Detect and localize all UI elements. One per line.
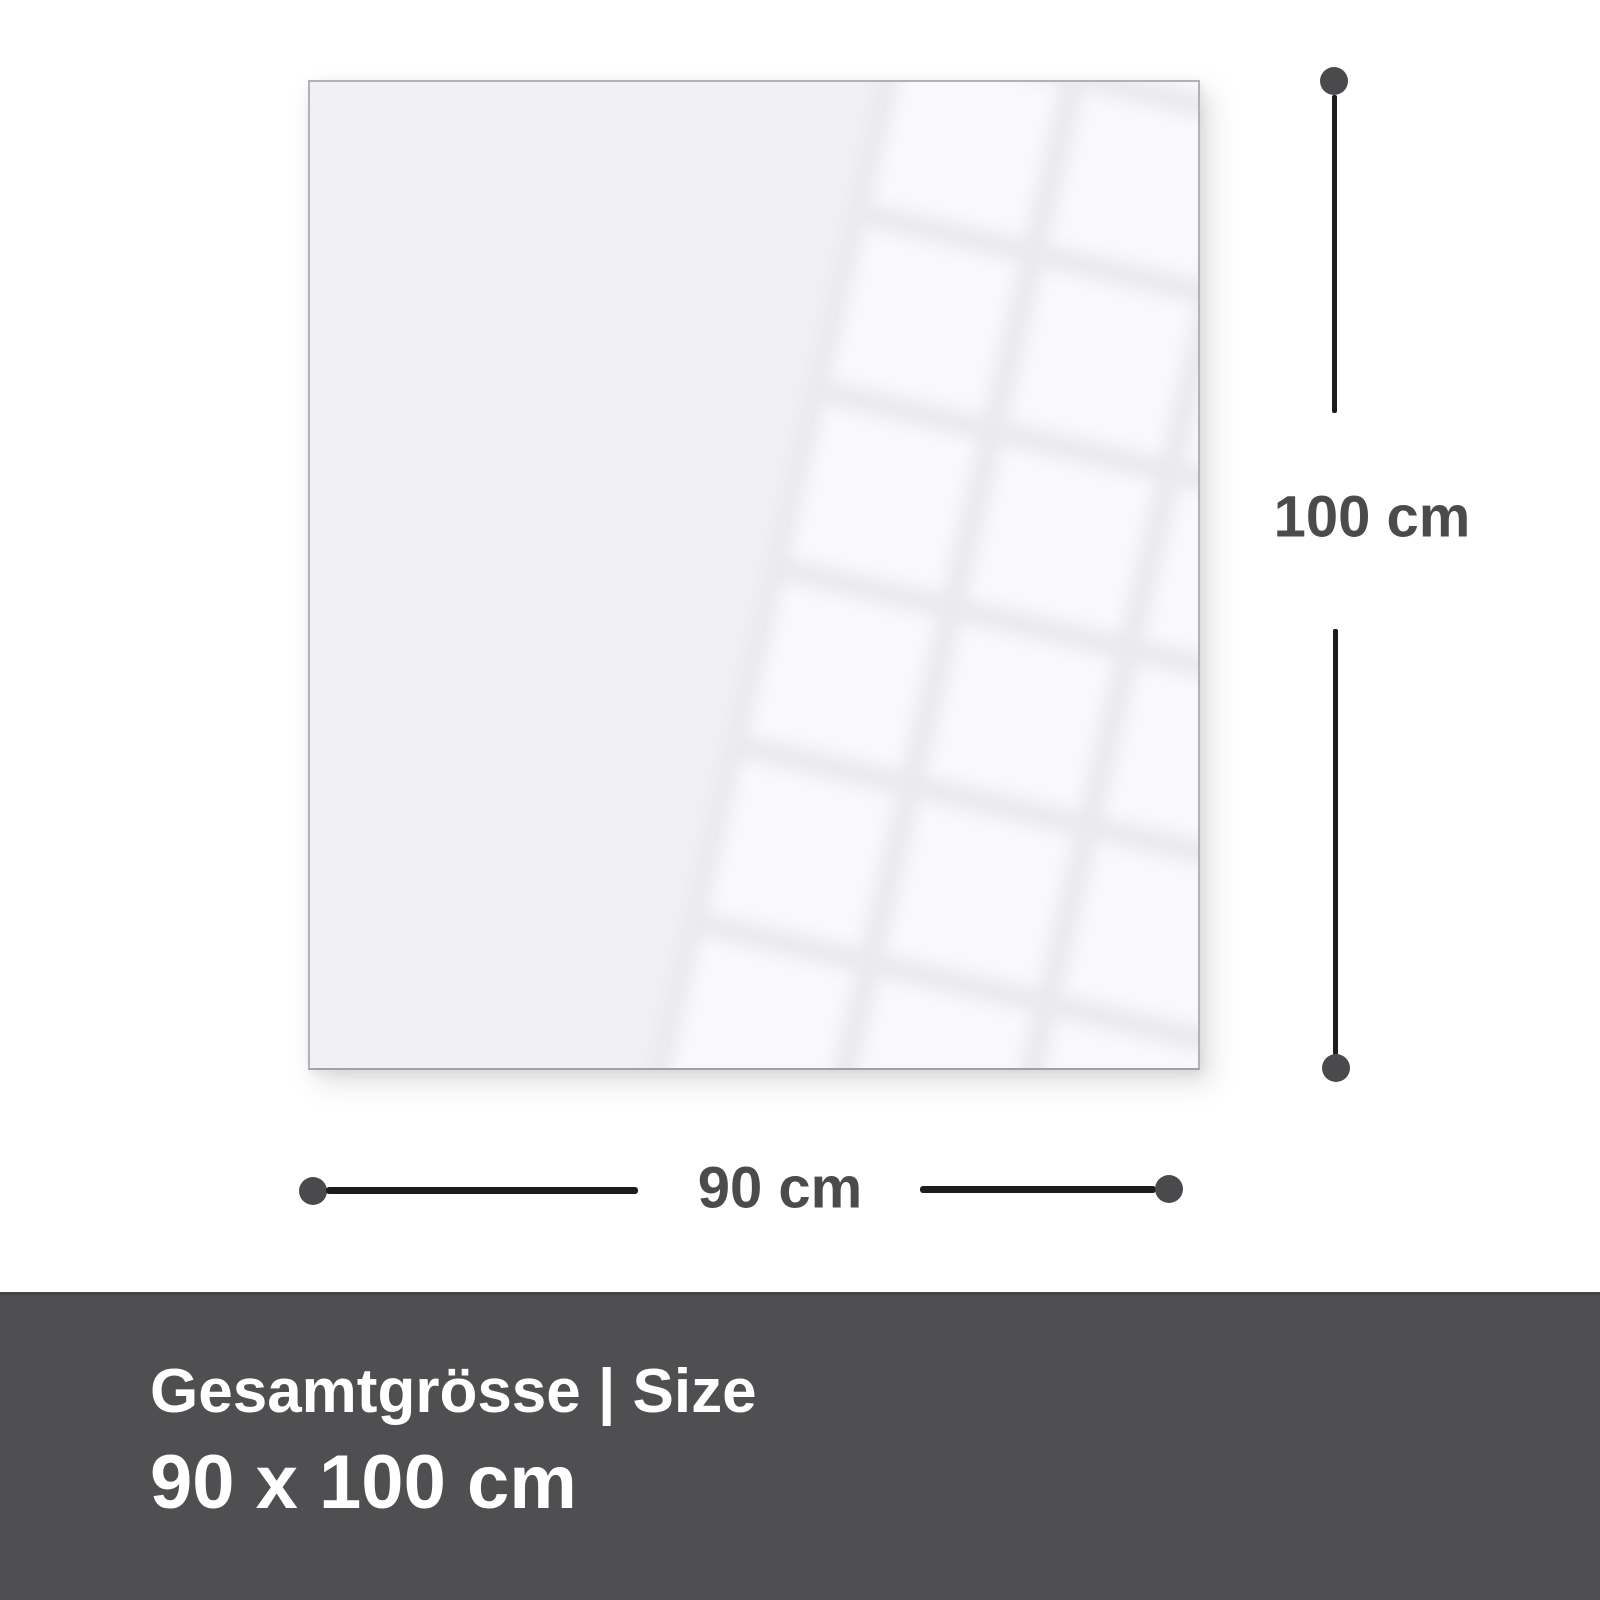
dimension-endpoint-dot-top [1320, 67, 1348, 95]
product-panel [308, 80, 1200, 1070]
product-size-diagram: 100 cm 90 cm Gesamtgrösse | Size 90 x 10… [0, 0, 1600, 1600]
height-dimension-line-lower [1333, 629, 1338, 1055]
dimension-endpoint-dot-left [299, 1177, 327, 1205]
height-dimension-label: 100 cm [1274, 484, 1471, 551]
height-dimension-line-upper [1332, 95, 1337, 413]
size-info-footer: Gesamtgrösse | Size 90 x 100 cm [0, 1292, 1600, 1600]
footer-size-value: 90 x 100 cm [150, 1445, 1600, 1521]
footer-title: Gesamtgrösse | Size [150, 1361, 1600, 1423]
dimension-endpoint-dot-bottom [1322, 1054, 1350, 1082]
width-dimension-label: 90 cm [698, 1155, 862, 1222]
dimension-endpoint-dot-right [1155, 1175, 1183, 1203]
glass-reflection [595, 80, 1200, 1070]
width-dimension-line-left [326, 1187, 638, 1194]
width-dimension-line-right [920, 1186, 1156, 1193]
